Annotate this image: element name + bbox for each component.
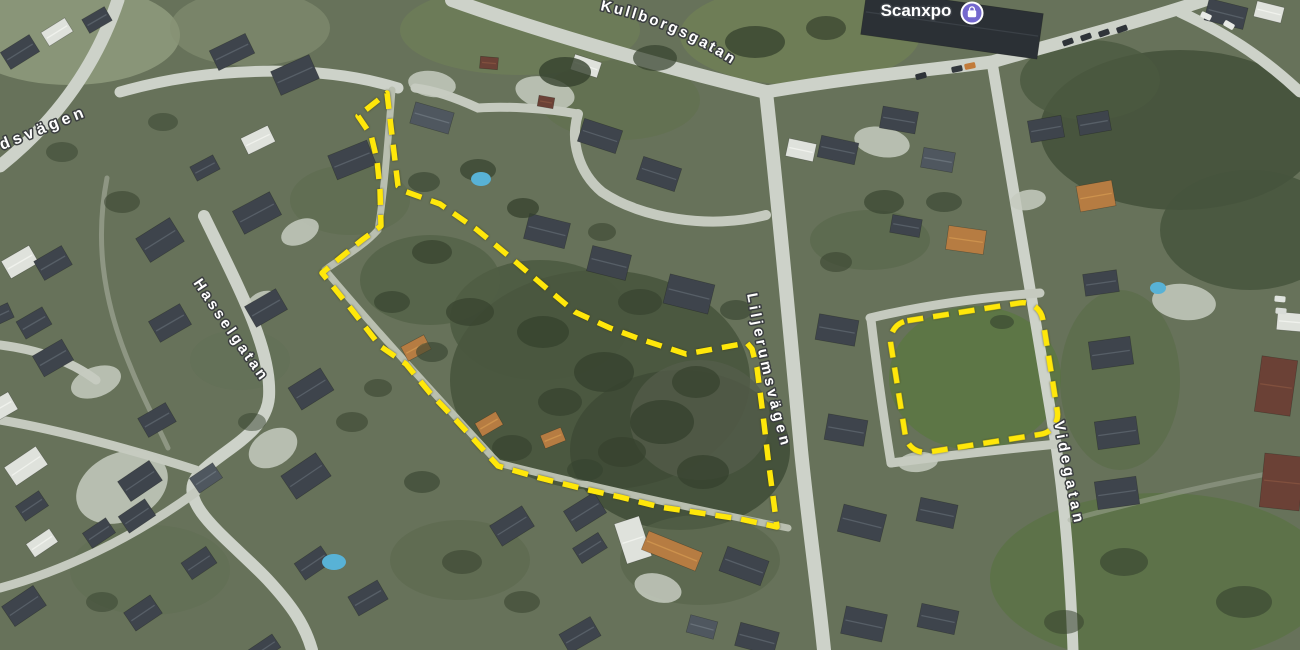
tree <box>538 388 582 416</box>
tree <box>442 550 482 574</box>
tree <box>492 435 532 461</box>
tree <box>86 592 118 612</box>
tree <box>504 591 540 613</box>
tree <box>539 57 591 87</box>
tree <box>336 412 368 432</box>
house <box>1254 356 1297 416</box>
tree <box>412 240 452 264</box>
tree <box>588 223 616 241</box>
shopping-bag-icon[interactable] <box>962 3 983 24</box>
pool <box>471 172 491 186</box>
tree <box>374 291 410 313</box>
tree <box>677 455 729 489</box>
satellite-map[interactable]: dsvägen Kullborgsgatan Hasselgatan Lilje… <box>0 0 1300 650</box>
pool <box>322 554 346 570</box>
tree <box>408 172 440 192</box>
tree <box>416 342 448 362</box>
tree <box>567 459 603 481</box>
house <box>480 56 499 70</box>
tree <box>926 192 962 212</box>
tree <box>517 316 569 348</box>
house <box>1276 312 1300 333</box>
tree <box>238 413 266 431</box>
tree <box>574 352 634 392</box>
tree <box>864 190 904 214</box>
bag-body <box>968 10 976 17</box>
tree <box>1216 586 1272 618</box>
house <box>1094 476 1139 510</box>
tree <box>1044 610 1084 634</box>
tree <box>148 113 178 131</box>
tree <box>820 252 852 272</box>
tree <box>46 142 78 162</box>
tree <box>404 471 440 493</box>
tree <box>446 298 494 326</box>
house <box>1094 416 1139 450</box>
tree <box>630 400 694 444</box>
tree <box>990 315 1014 329</box>
tree <box>618 289 662 315</box>
house <box>1088 336 1133 370</box>
pool <box>1150 282 1166 294</box>
tree <box>598 437 646 467</box>
tree <box>806 16 846 40</box>
tree <box>672 366 720 398</box>
tree <box>104 191 140 213</box>
tree <box>507 198 539 218</box>
map-viewport[interactable]: dsvägen Kullborgsgatan Hasselgatan Lilje… <box>0 0 1300 650</box>
house <box>1083 270 1120 297</box>
house <box>946 225 987 254</box>
tree <box>1100 548 1148 576</box>
car <box>1274 296 1285 303</box>
tree <box>633 45 677 71</box>
tree <box>364 379 392 397</box>
house <box>1259 453 1300 511</box>
poi-label-scanxpo[interactable]: Scanxpo <box>881 1 952 20</box>
house <box>537 95 555 109</box>
car <box>1275 308 1286 315</box>
